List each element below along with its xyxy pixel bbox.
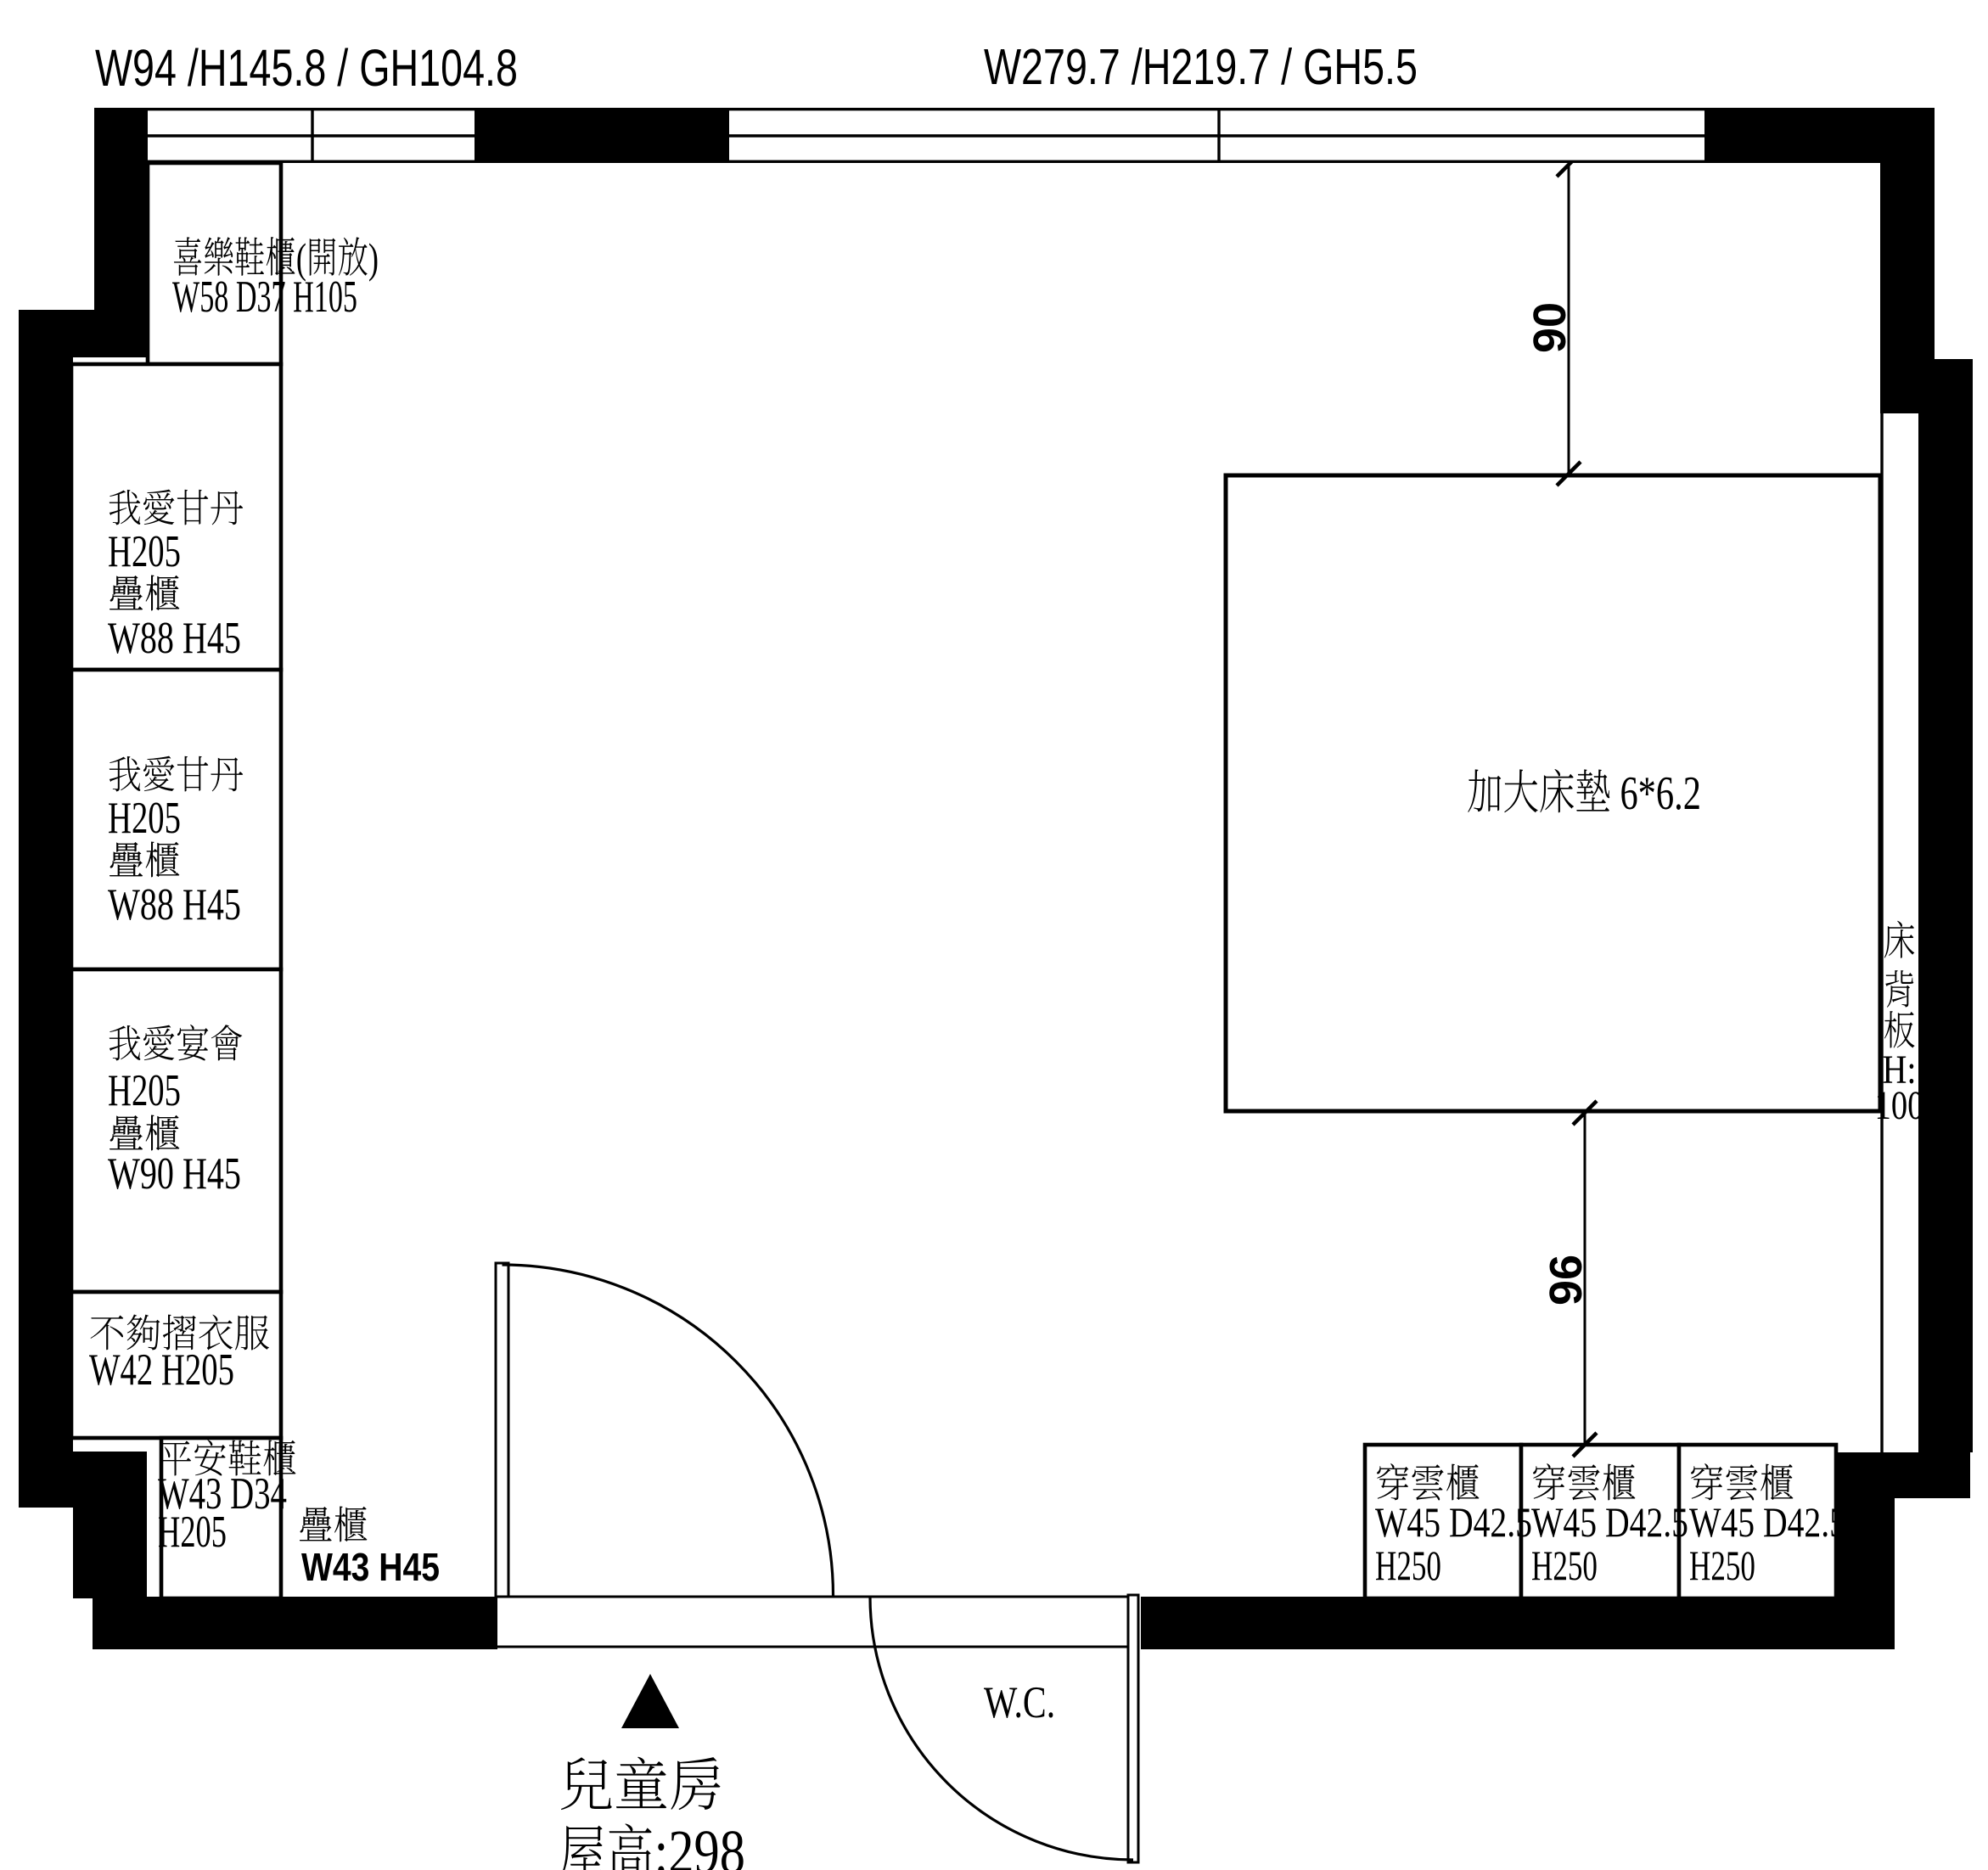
svg-text:W42 H205: W42 H205 <box>89 1345 234 1395</box>
svg-text:W88 H45: W88 H45 <box>108 614 241 664</box>
svg-text:W90 H45: W90 H45 <box>108 1149 241 1199</box>
svg-text:96: 96 <box>1541 1255 1592 1306</box>
svg-text:W88 H45: W88 H45 <box>108 880 241 930</box>
svg-text:W58 D37 H105: W58 D37 H105 <box>172 271 357 321</box>
svg-text:H205: H205 <box>158 1506 227 1556</box>
svg-text:): ) <box>368 236 379 283</box>
svg-text:H205: H205 <box>108 1066 181 1115</box>
svg-text:W94 /H145.8 / GH104.8: W94 /H145.8 / GH104.8 <box>95 39 518 98</box>
svg-text:W45 D42.5: W45 D42.5 <box>1689 1499 1846 1546</box>
svg-text::298: :298 <box>654 1818 745 1870</box>
svg-text:W45 D42.5: W45 D42.5 <box>1375 1499 1532 1546</box>
svg-text:H205: H205 <box>108 794 181 843</box>
svg-text:W43 H45: W43 H45 <box>301 1546 440 1590</box>
svg-text:6*6.2: 6*6.2 <box>1611 767 1701 819</box>
svg-text:H205: H205 <box>108 527 181 576</box>
svg-text:W279.7 /H219.7 / GH5.5: W279.7 /H219.7 / GH5.5 <box>984 40 1418 95</box>
svg-text:H250: H250 <box>1689 1543 1755 1589</box>
svg-text:H250: H250 <box>1531 1543 1598 1589</box>
svg-text:H250: H250 <box>1375 1543 1441 1589</box>
svg-text:100: 100 <box>1875 1083 1924 1128</box>
svg-text:90: 90 <box>1525 302 1575 353</box>
svg-text:W45 D42.5: W45 D42.5 <box>1531 1499 1688 1546</box>
svg-text:W.C.: W.C. <box>984 1678 1055 1727</box>
